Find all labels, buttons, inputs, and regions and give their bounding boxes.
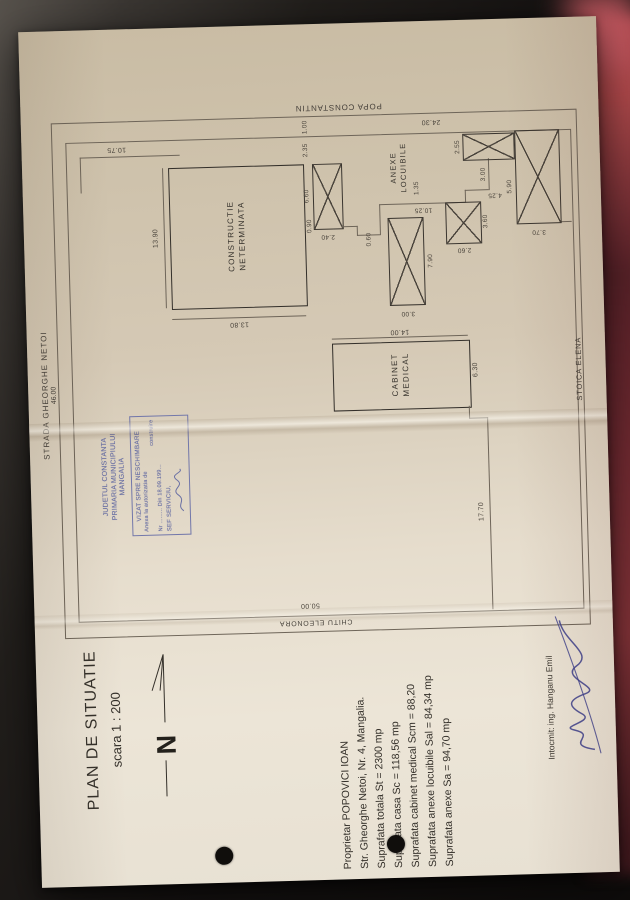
neighbor-right-label: POPA CONSTANTIN bbox=[295, 102, 382, 113]
dim-label: 2.60 bbox=[457, 246, 471, 253]
author-signature-graphic bbox=[549, 609, 609, 761]
dim-label: 13.80 bbox=[230, 320, 249, 328]
dim-label: 50.00 bbox=[301, 602, 320, 610]
dim-label: 13.90 bbox=[152, 229, 160, 248]
dim-label: 5.90 bbox=[506, 180, 513, 194]
dim-label: 6.30 bbox=[472, 362, 479, 377]
dim-label: 2.40 bbox=[321, 233, 335, 240]
dim-label: 0.90 bbox=[306, 219, 313, 233]
hole-punch-left bbox=[215, 847, 233, 865]
dim-label: 4.25 bbox=[488, 191, 502, 198]
dim-label: 10.75 bbox=[107, 146, 126, 154]
dim-label: 7.90 bbox=[427, 254, 434, 268]
author-signature bbox=[549, 609, 614, 761]
dim-label: 3.70 bbox=[532, 228, 546, 235]
dim-label: 2.35 bbox=[302, 143, 309, 157]
dim-label: 6.60 bbox=[303, 189, 310, 203]
north-letter: N bbox=[151, 734, 182, 754]
north-arrow: N bbox=[143, 650, 192, 801]
photo-scene: 10.75 24.30 1.00 POPA CONSTANTIN STRADA … bbox=[0, 0, 630, 900]
page-title: PLAN DE SITUATIE bbox=[81, 630, 105, 830]
label-line: MEDICAL bbox=[400, 352, 412, 396]
dim-label: 3.00 bbox=[401, 310, 415, 317]
label-line: LOCUIBILE bbox=[397, 142, 408, 192]
building-medical-cabinet-label: CABINET MEDICAL bbox=[390, 352, 412, 397]
dim-label: 10.25 bbox=[414, 206, 432, 213]
dim-label: 3.60 bbox=[482, 214, 489, 228]
title-block: PLAN DE SITUATIE scara 1 : 200 bbox=[81, 630, 127, 831]
dim-label: 3.00 bbox=[480, 167, 487, 181]
stamp-visa-box: VIZAT SPRE NESCHIMBARE Anexa la autoriza… bbox=[129, 415, 191, 537]
dim-label: 14.00 bbox=[390, 328, 409, 336]
site-plan-sheet: 10.75 24.30 1.00 POPA CONSTANTIN STRADA … bbox=[18, 16, 620, 888]
label-line: NETERMINATA bbox=[236, 200, 248, 271]
annex-label: ANEXE LOCUIBILE bbox=[388, 142, 408, 192]
hatched-annex-box-4 bbox=[462, 132, 515, 160]
stamp-signature bbox=[172, 467, 187, 513]
hatched-annex-box-5 bbox=[514, 129, 562, 224]
hatched-annex-box-3 bbox=[445, 201, 482, 244]
scale-label: scara 1 : 200 bbox=[106, 630, 127, 830]
hatched-annex-box-2 bbox=[387, 217, 425, 306]
building-unfinished-construction-label: CONSTRUCTIE NETERMINATA bbox=[225, 200, 248, 272]
dim-label: 1.35 bbox=[413, 181, 420, 195]
hatched-annex-box-1 bbox=[312, 163, 344, 230]
dim-label: 17.70 bbox=[478, 502, 486, 521]
label-line: CABINET bbox=[390, 353, 402, 397]
owner-info-block: Proprietar POPOVICI IOAN Str. Gheorghe N… bbox=[333, 608, 459, 869]
dim-label: 24.30 bbox=[421, 118, 440, 126]
dim-label: 2.55 bbox=[454, 140, 461, 154]
stamp-city-hall: JUDETUL CONSTANTA PRIMARIA MUNICIPIULUI … bbox=[100, 415, 191, 537]
neighbor-bottom-label: STOICA ELENA bbox=[573, 337, 584, 401]
dim-label: 1.00 bbox=[301, 120, 308, 134]
north-arrow-graphic: N bbox=[143, 650, 187, 801]
